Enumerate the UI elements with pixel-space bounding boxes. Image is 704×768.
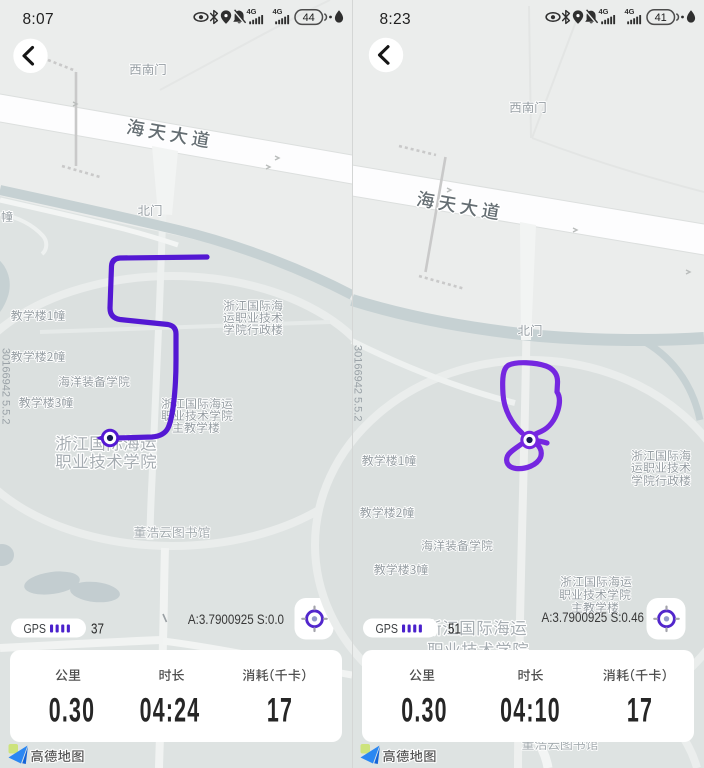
svg-text:GPS: GPS	[24, 621, 47, 636]
svg-text:A:3.7900925 S:0.46: A:3.7900925 S:0.46	[541, 610, 644, 625]
svg-text:0.30: 0.30	[49, 691, 96, 729]
svg-text:4G: 4G	[272, 7, 282, 16]
svg-text:4G: 4G	[246, 7, 256, 16]
svg-text:8:07: 8:07	[23, 11, 54, 28]
svg-text:30166942 5.5.2: 30166942 5.5.2	[0, 348, 12, 424]
svg-text:04:24: 04:24	[140, 691, 201, 729]
svg-text:30166942 5.5.2: 30166942 5.5.2	[352, 345, 364, 421]
svg-text:A:3.7900925 S:0.0: A:3.7900925 S:0.0	[188, 612, 284, 627]
svg-text:0.30: 0.30	[401, 691, 448, 729]
svg-text:51: 51	[448, 620, 461, 637]
svg-text:17: 17	[267, 691, 293, 729]
svg-text:04:10: 04:10	[500, 691, 561, 729]
svg-text:4G: 4G	[624, 7, 634, 16]
svg-text:GPS: GPS	[376, 621, 399, 636]
svg-text:17: 17	[627, 691, 653, 729]
svg-text:8:23: 8:23	[380, 11, 411, 28]
svg-text:37: 37	[91, 620, 104, 637]
svg-text:4G: 4G	[598, 7, 608, 16]
svg-text:41: 41	[655, 12, 667, 24]
svg-text:44: 44	[303, 12, 315, 24]
